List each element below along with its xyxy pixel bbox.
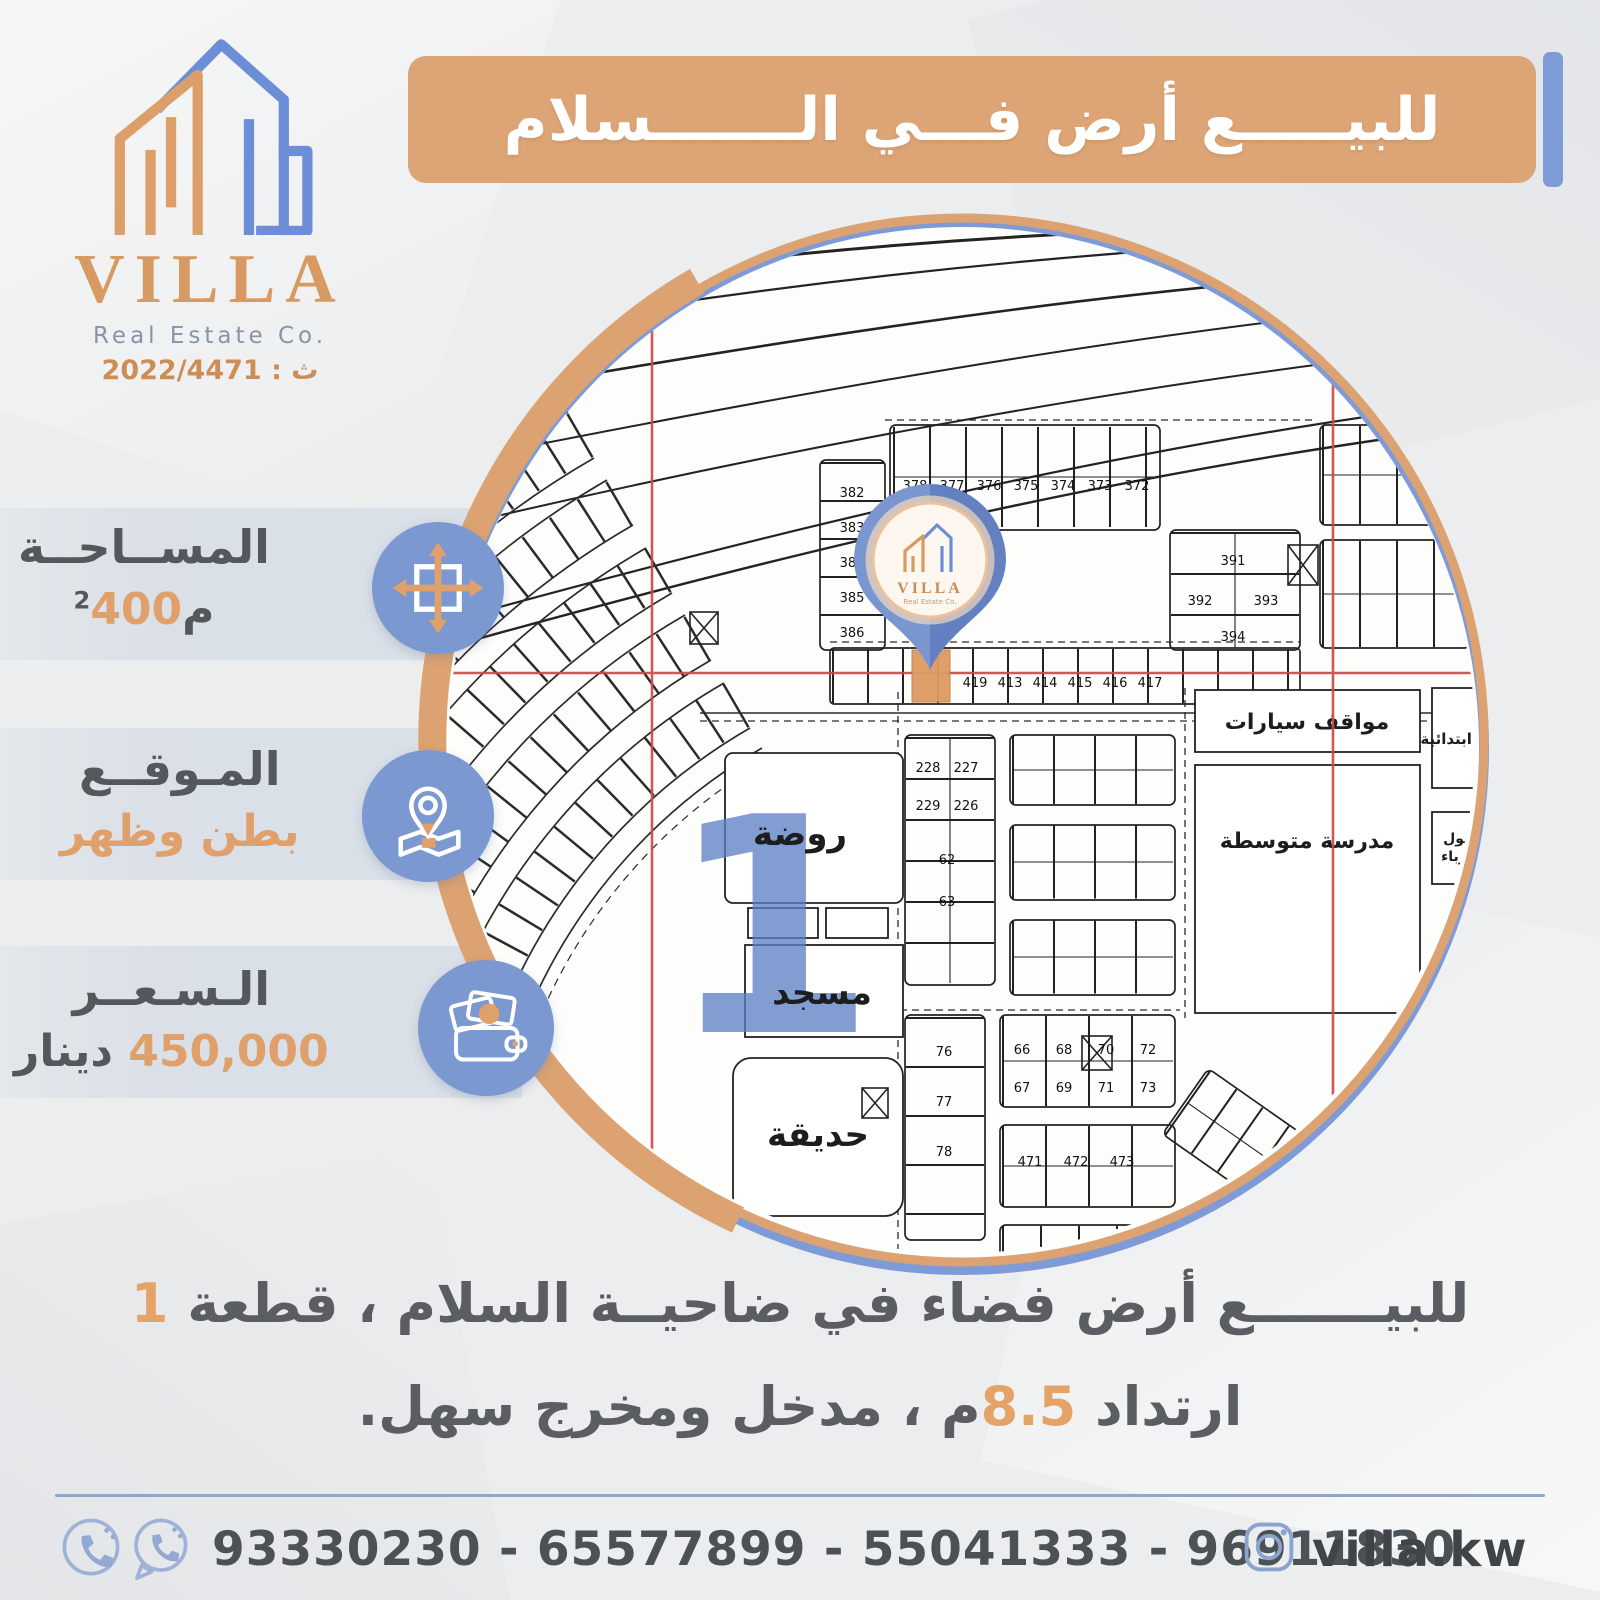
info-price: الـسـعــر 450,000 دينار <box>0 962 350 1077</box>
svg-text:62: 62 <box>939 853 956 868</box>
map-big-number: 1 <box>668 754 877 1103</box>
area-label: المســاحــة <box>18 520 270 574</box>
svg-text:385: 385 <box>840 591 865 606</box>
svg-text:414: 414 <box>1033 676 1058 691</box>
svg-text:68: 68 <box>1056 1043 1073 1058</box>
instagram-icon[interactable] <box>1238 1516 1300 1578</box>
svg-text:471: 471 <box>1018 1155 1043 1170</box>
svg-text:226: 226 <box>954 799 979 814</box>
svg-text:70: 70 <box>1098 1043 1115 1058</box>
banner-accent-bar <box>1543 52 1563 187</box>
svg-text:419: 419 <box>963 676 988 691</box>
phone-icon <box>58 1514 124 1580</box>
price-number: 450,000 <box>128 1026 328 1077</box>
brand-logo: VILLA Real Estate Co. ث : 2022/4471 <box>55 30 365 386</box>
price-value: 450,000 دينار <box>14 1026 329 1077</box>
svg-text:415: 415 <box>1068 676 1093 691</box>
setback-value-highlight: 8.5 <box>981 1375 1077 1438</box>
license-value: 2022/4471 <box>102 355 262 386</box>
label-mosque: مسجد <box>772 973 872 1013</box>
plot-map: 378377376375374373372 382383384385386 39… <box>360 180 1545 1310</box>
info-location: المـوقــع بطن وظهر <box>0 742 350 857</box>
location-value: بطن وظهر <box>60 806 300 857</box>
brand-tagline: Real Estate Co. <box>55 323 365 349</box>
headline-banner: للبيـــــع أرض فـــي الـــــــسلام <box>408 56 1536 183</box>
svg-text:72: 72 <box>1140 1043 1157 1058</box>
description-line1-text: للبيـــــــع أرض فضاء في ضاحيــة السلام … <box>168 1272 1469 1335</box>
label-middle-school: مدرسة متوسطة <box>1220 829 1394 854</box>
area-unit: م <box>182 584 214 635</box>
svg-text:473: 473 <box>1110 1155 1135 1170</box>
area-sup: 2 <box>73 586 90 614</box>
poster: VILLA Real Estate Co. ث : 2022/4471 للبي… <box>0 0 1600 1600</box>
setback-label: ارتداد <box>1076 1375 1242 1438</box>
expand-icon <box>388 538 488 638</box>
buildings-logo-icon <box>95 30 325 235</box>
svg-text:229: 229 <box>916 799 941 814</box>
label-elementary-school: مدرسة ابتدائية <box>1420 730 1527 748</box>
svg-text:416: 416 <box>1103 676 1128 691</box>
svg-text:66: 66 <box>1014 1043 1031 1058</box>
svg-text:472: 472 <box>1064 1155 1089 1170</box>
map-pin-icon <box>378 766 478 866</box>
svg-text:227: 227 <box>954 761 979 776</box>
footer-divider <box>55 1494 1545 1497</box>
svg-text:71: 71 <box>1098 1081 1115 1096</box>
info-area: المســاحــة 2400م <box>0 520 350 635</box>
svg-text:78: 78 <box>936 1145 953 1160</box>
svg-text:417: 417 <box>1138 676 1163 691</box>
svg-text:69: 69 <box>1056 1081 1073 1096</box>
money-icon <box>434 976 538 1080</box>
brand-name: VILLA <box>55 245 365 315</box>
description-line-2: ارتداد 8.5م ، مدخل ومخرج سهل. <box>90 1375 1510 1438</box>
whatsapp-icon <box>126 1514 192 1580</box>
svg-text:382: 382 <box>840 486 865 501</box>
area-icon-badge <box>372 522 504 654</box>
license-number: ث : 2022/4471 <box>55 355 365 386</box>
svg-text:76: 76 <box>936 1045 953 1060</box>
svg-text:77: 77 <box>936 1095 953 1110</box>
price-label: الـسـعــر <box>14 962 329 1016</box>
area-value: 2400م <box>18 584 270 635</box>
pin-brand: VILLA <box>897 580 963 597</box>
label-parking: مواقف سيارات <box>1225 710 1389 735</box>
svg-text:228: 228 <box>916 761 941 776</box>
svg-text:391: 391 <box>1221 554 1246 569</box>
license-label: ث : <box>271 355 318 386</box>
svg-text:73: 73 <box>1140 1081 1157 1096</box>
price-unit: دينار <box>14 1026 113 1077</box>
description: للبيـــــــع أرض فضاء في ضاحيــة السلام … <box>90 1272 1510 1438</box>
svg-text:372: 372 <box>1125 479 1150 494</box>
svg-text:376: 376 <box>977 479 1002 494</box>
price-icon-badge <box>418 960 554 1096</box>
location-label: المـوقــع <box>60 742 300 796</box>
instagram-handle[interactable]: villa.kw <box>1312 1522 1528 1578</box>
pin-sub: Real Estate Co. <box>904 598 957 606</box>
svg-text:393: 393 <box>1254 594 1279 609</box>
area-number: 400 <box>90 584 182 635</box>
svg-text:63: 63 <box>939 895 956 910</box>
svg-text:392: 392 <box>1188 594 1213 609</box>
location-icon-badge <box>362 750 494 882</box>
description-line-1: للبيـــــــع أرض فضاء في ضاحيــة السلام … <box>90 1272 1510 1335</box>
svg-text:373: 373 <box>1088 479 1113 494</box>
description-line2-suffix: م ، مدخل ومخرج سهل. <box>358 1375 981 1438</box>
label-park: حديقة <box>767 1115 869 1155</box>
plot-number-highlight: 1 <box>131 1272 169 1335</box>
svg-text:413: 413 <box>998 676 1023 691</box>
svg-text:375: 375 <box>1014 479 1039 494</box>
svg-text:67: 67 <box>1014 1081 1031 1096</box>
svg-text:374: 374 <box>1051 479 1076 494</box>
svg-text:386: 386 <box>840 626 865 641</box>
svg-text:394: 394 <box>1221 630 1246 645</box>
label-kindergarten: روضة <box>753 814 847 854</box>
headline-title: للبيـــــع أرض فـــي الـــــــسلام <box>504 85 1441 155</box>
